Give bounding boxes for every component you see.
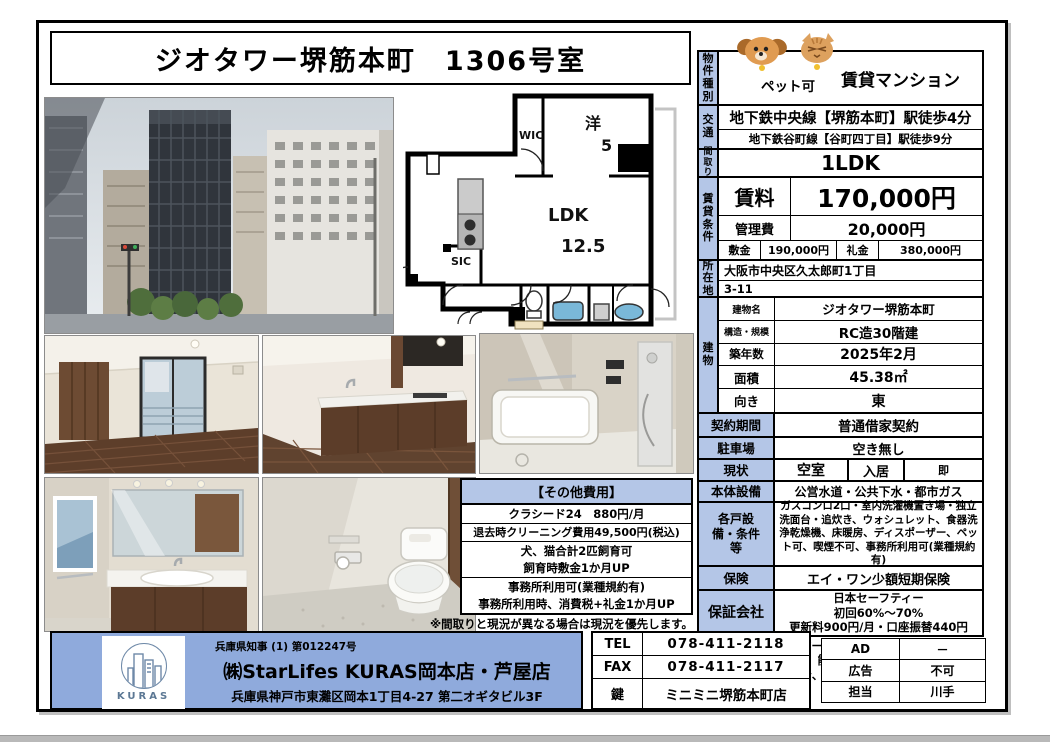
agency-box: KURAS 兵庫県知事 (1) 第012247号 ㈱StarLifes KURA… — [50, 631, 583, 710]
staff-value: 川手 — [900, 682, 985, 702]
guarantor-label: 保証会社 — [699, 591, 775, 635]
pet-ok-label: ペット可 — [733, 75, 843, 95]
key-money-value: 380,000円 — [879, 241, 982, 259]
contract-value: 普通借家契約 — [775, 414, 982, 436]
parking-label: 駐車場 — [699, 438, 775, 458]
area-label: 面積 — [719, 366, 775, 388]
movein-value: 即 — [905, 460, 982, 480]
svg-text:SIC: SIC — [451, 255, 471, 268]
kuras-logo-text: KURAS — [117, 691, 170, 702]
property-type-cell: ペット可 賃貸マンション — [719, 52, 982, 104]
agency-info: 兵庫県知事 (1) 第012247号 ㈱StarLifes KURAS岡本店・芦… — [197, 637, 577, 708]
photo-washroom — [45, 478, 258, 631]
advert-label: 広告 — [822, 660, 900, 680]
svg-text:WIC: WIC — [519, 129, 543, 142]
utilities-label: 本体設備 — [699, 482, 775, 501]
key-row: 鍵 ミニミニ堺筋本町店 — [593, 679, 809, 708]
property-detail-table: 物件種別 — [697, 50, 984, 682]
access-label: 交通 — [699, 106, 719, 148]
property-type-label: 物件種別 — [699, 52, 719, 104]
staff-row: 担当 川手 — [822, 682, 985, 702]
photo-kitchen — [263, 336, 475, 473]
window-bottom-edge — [0, 735, 1050, 742]
movein-label: 入居 — [849, 460, 905, 480]
dog-cat-icons — [736, 33, 840, 73]
floorplan-drawing: WIC 洋 5 LDK 12.5 SIC — [403, 89, 693, 334]
pet-ok-badge: ペット可 — [733, 33, 843, 95]
tel-value: 078-411-2118 — [643, 633, 809, 655]
tel-label: TEL — [593, 633, 643, 655]
address-line1: 大阪市中央区久太郎町1丁目 — [719, 261, 982, 280]
management-fee-label: 管理費 — [719, 216, 791, 240]
other-cost-row: クラシード24 880円/月 — [462, 505, 691, 523]
flyer-sheet: ジオタワー堺筋本町 1306号室 — [36, 20, 1008, 712]
access-line2: 地下鉄谷町線【谷町四丁目】駅徒歩9分 — [719, 130, 982, 148]
utilities-value: 公営水道・公共下水・都市ガス — [775, 482, 982, 501]
kuras-logo-icon — [121, 643, 167, 689]
parking-value: 空き無し — [775, 438, 982, 458]
management-fee-value: 20,000円 — [791, 216, 982, 240]
agency-license: 兵庫県知事 (1) 第012247号 — [215, 639, 577, 654]
svg-text:12.5: 12.5 — [561, 236, 605, 257]
kuras-logo: KURAS — [102, 636, 185, 709]
insurance-value: エイ・ワン少額短期保険 — [775, 567, 982, 589]
property-type-value: 賃貸マンション — [841, 66, 960, 91]
address-line2: 3-11 — [719, 281, 982, 296]
photo-toilet — [263, 478, 475, 631]
ad-label: AD — [822, 639, 900, 659]
guarantor-line2: 初回60%～70% — [834, 606, 924, 620]
other-cost-row: 事務所利用可(業種規約有) — [462, 577, 691, 596]
built-year-label: 築年数 — [719, 344, 775, 366]
building-name-label: 建物名 — [719, 298, 775, 320]
status-label: 現状 — [699, 460, 775, 480]
rent-label: 賃料 — [719, 178, 791, 215]
address-label: 所在地 — [699, 261, 719, 296]
key-label: 鍵 — [593, 679, 643, 708]
built-year-value: 2025年2月 — [775, 344, 982, 366]
agency-address: 兵庫県神戸市東灘区岡本1丁目4-27 第二オギタビル3F — [197, 686, 577, 705]
rent-section-label: 賃貸条件 — [699, 178, 719, 259]
guarantor-value: 日本セーフティー 初回60%～70% 更新料900円/月・口座振替440円 — [775, 591, 982, 635]
key-money-label: 礼金 — [837, 241, 879, 259]
insurance-label: 保険 — [699, 567, 775, 589]
equipment-label: 各戸設備・条件等 — [699, 503, 775, 565]
structure-value: RC造30階建 — [775, 321, 982, 343]
layout-value: 1LDK — [719, 150, 982, 176]
guarantor-line3: 更新料900円/月・口座振替440円 — [789, 620, 968, 634]
layout-label: 間取り — [699, 150, 719, 176]
staff-label: 担当 — [822, 682, 900, 702]
flyer-page: ジオタワー堺筋本町 1306号室 — [0, 0, 1050, 742]
agency-name: ㈱StarLifes KURAS岡本店・芦屋店 — [197, 657, 577, 684]
photo-building-exterior — [45, 98, 393, 333]
other-costs-header: 【その他費用】 — [462, 480, 691, 505]
area-value: 45.38㎡ — [775, 366, 982, 388]
photo-living-room — [45, 336, 258, 473]
floorplan-disclaimer: ※間取りと現況が異なる場合は現況を優先します。 — [393, 616, 693, 632]
other-cost-row: 事務所利用時、消費税+礼金1か月UP — [462, 596, 691, 614]
other-cost-row: 飼育時敷金1か月UP — [462, 560, 691, 578]
fax-label: FAX — [593, 656, 643, 678]
svg-text:LDK: LDK — [548, 205, 589, 226]
svg-text:5: 5 — [601, 136, 612, 155]
equipment-value: ガスコンロ2口・室内洗濯機置き場・独立洗面台・追炊き、ウォシュレット、食器洗浄乾… — [775, 503, 982, 565]
other-cost-row: 犬、猫合計2匹飼育可 — [462, 541, 691, 560]
rent-value: 170,000円 — [791, 178, 982, 215]
contact-table: TEL 078-411-2118 FAX 078-411-2117 鍵 ミニミニ… — [591, 631, 811, 710]
ad-row: AD － — [822, 639, 985, 660]
key-value: ミニミニ堺筋本町店 — [643, 679, 809, 708]
photo-bathroom — [480, 334, 693, 473]
page-title: ジオタワー堺筋本町 1306号室 — [50, 31, 691, 85]
svg-text:洋: 洋 — [585, 114, 601, 133]
facing-value: 東 — [775, 389, 982, 412]
broker-meta-table: AD － 広告 不可 担当 川手 — [821, 638, 986, 703]
structure-label: 構造・規模 — [719, 321, 775, 343]
ad-value: － — [900, 639, 985, 659]
fax-row: FAX 078-411-2117 — [593, 656, 809, 679]
other-cost-row: 退去時クリーニング費用49,500円(税込) — [462, 523, 691, 542]
other-costs-box: 【その他費用】 クラシード24 880円/月 退去時クリーニング費用49,500… — [460, 478, 693, 615]
deposit-value: 190,000円 — [761, 241, 837, 259]
building-exterior-illustration — [45, 98, 393, 333]
fax-value: 078-411-2117 — [643, 656, 809, 678]
building-label: 建物 — [699, 298, 719, 412]
advert-row: 広告 不可 — [822, 660, 985, 681]
contract-label: 契約期間 — [699, 414, 775, 436]
deposit-label: 敷金 — [719, 241, 761, 259]
status-value: 空室 — [775, 460, 849, 480]
advert-value: 不可 — [900, 660, 985, 680]
guarantor-line1: 日本セーフティー — [833, 591, 924, 605]
tel-row: TEL 078-411-2118 — [593, 633, 809, 656]
building-name-value: ジオタワー堺筋本町 — [775, 298, 982, 320]
access-line1: 地下鉄中央線【堺筋本町】駅徒歩4分 — [719, 106, 982, 129]
facing-label: 向き — [719, 389, 775, 412]
